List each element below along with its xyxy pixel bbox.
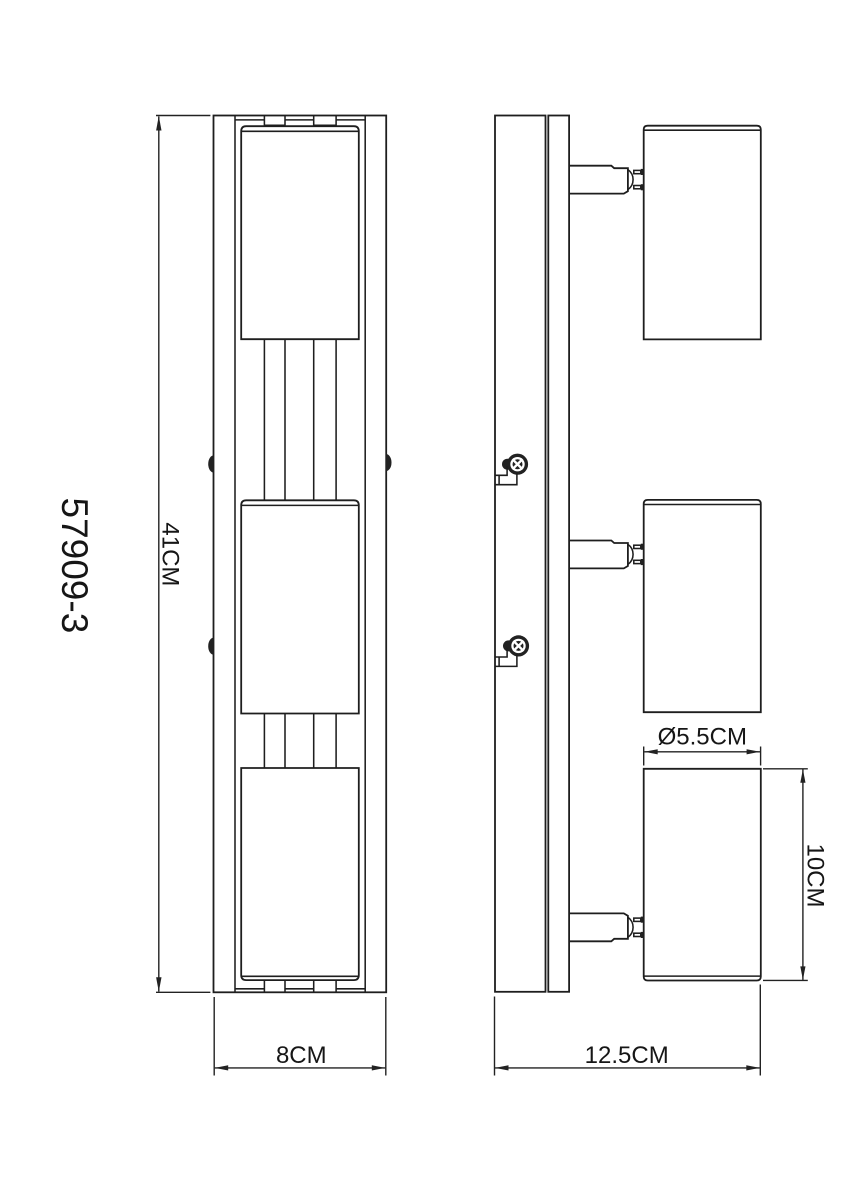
svg-text:8CM: 8CM — [276, 1042, 327, 1069]
svg-text:57909-3: 57909-3 — [54, 498, 95, 634]
svg-text:41CM: 41CM — [156, 522, 183, 586]
svg-text:Ø5.5CM: Ø5.5CM — [658, 724, 747, 751]
svg-text:12.5CM: 12.5CM — [585, 1042, 669, 1069]
svg-text:10CM: 10CM — [801, 843, 828, 907]
